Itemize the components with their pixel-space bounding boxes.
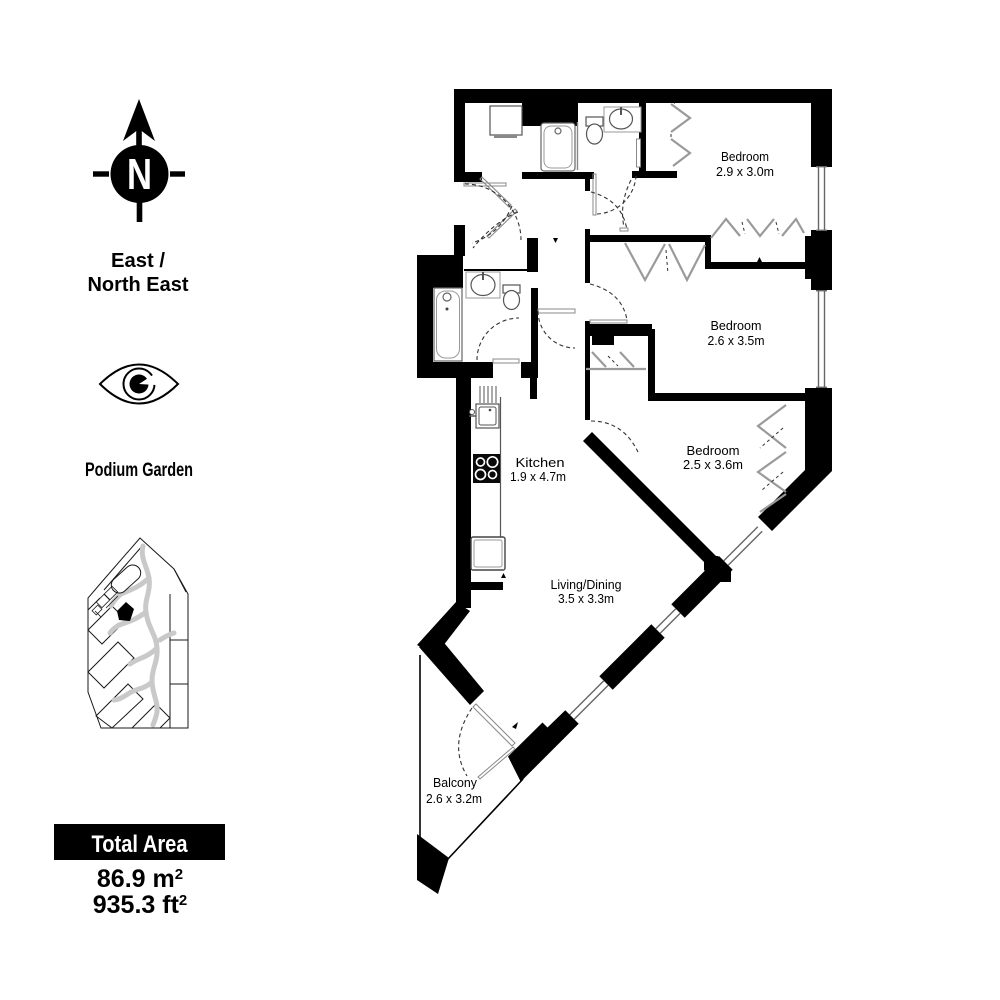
svg-text:2.9 x 3.0m: 2.9 x 3.0m: [716, 164, 774, 179]
svg-text:Kitchen: Kitchen: [516, 455, 565, 470]
svg-text:1.9 x 4.7m: 1.9 x 4.7m: [510, 469, 566, 484]
svg-text:2.5 x 3.6m: 2.5 x 3.6m: [683, 457, 743, 472]
svg-text:North East: North East: [88, 274, 189, 296]
svg-text:Balcony: Balcony: [433, 775, 477, 790]
svg-text:N: N: [127, 150, 152, 199]
svg-text:2.6 x 3.2m: 2.6 x 3.2m: [426, 791, 482, 806]
svg-text:Total Area: Total Area: [92, 831, 189, 858]
svg-text:Podium Garden: Podium Garden: [85, 460, 193, 481]
svg-text:Bedroom: Bedroom: [711, 318, 762, 333]
svg-text:East /: East /: [111, 250, 165, 272]
svg-text:Bedroom: Bedroom: [687, 443, 740, 458]
svg-text:2.6 x 3.5m: 2.6 x 3.5m: [708, 333, 765, 348]
svg-text:86.9 m2: 86.9 m2: [97, 865, 183, 893]
svg-text:Bedroom: Bedroom: [721, 149, 769, 164]
svg-text:Living/Dining: Living/Dining: [551, 577, 622, 592]
svg-text:3.5 x 3.3m: 3.5 x 3.3m: [558, 591, 614, 606]
svg-text:935.3 ft2: 935.3 ft2: [93, 891, 188, 919]
